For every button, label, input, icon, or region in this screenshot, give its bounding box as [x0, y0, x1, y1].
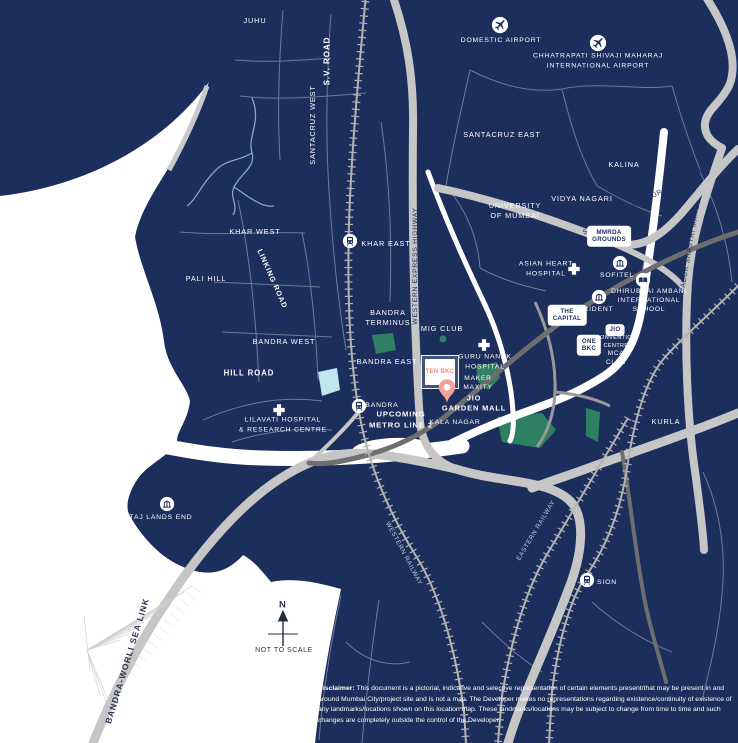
one-bkc-badge: ONE BKC	[577, 335, 601, 356]
domestic-airport-icon	[492, 17, 509, 34]
mmrda-grounds-badge: MMRDA GROUNDS	[587, 226, 631, 247]
area-label-maker-maxity: MAKER MAXITY	[463, 374, 492, 392]
landmark-label-domestic-airport: DOMESTIC AIRPORT	[461, 36, 542, 46]
area-label-kala-nagar: KALA NAGAR	[429, 418, 480, 428]
landmark-label-sofitel: SOFITEL	[600, 271, 634, 281]
area-label-bandra-east: BANDRA EAST	[357, 357, 418, 367]
area-label-bandra-terminus: BANDRA TERMINUS	[365, 308, 410, 328]
khar-east-station-icon	[343, 234, 358, 249]
lilavati-hospital-icon	[272, 403, 287, 418]
dhirubhai-ambani-school-icon	[636, 273, 651, 288]
landmark-label-guru-nanak-hospital: GURU NANAK HOSPITAL	[458, 352, 511, 371]
bandra-station-icon	[352, 399, 367, 414]
disclaimer-label: Disclaimer:	[318, 685, 355, 692]
compass-arrow-icon	[261, 609, 305, 649]
location-map: JUHU SANTACRUZ WEST S.V. ROAD SANTACRUZ …	[0, 0, 738, 743]
area-label-mig-club: MIG CLUB	[421, 324, 463, 334]
landmark-label-dhirubhai-ambani-school: DHIRUBHAI AMBANI INTERNATIONAL SCHOOL	[611, 287, 687, 315]
area-label-pali-hill: PALI HILL	[186, 274, 227, 284]
bandra-lake	[318, 368, 340, 396]
area-label-khar-east: KHAR EAST	[361, 239, 410, 249]
map-artwork	[0, 0, 738, 743]
landmark-label-international-airport: CHHATRAPATI SHIVAJI MAHARAJ INTERNATIONA…	[533, 51, 663, 70]
the-capital-badge: THE CAPITAL	[548, 305, 587, 326]
area-label-kurla: KURLA	[652, 417, 681, 427]
railway-label-upcoming-metro-line-2: UPCOMING METRO LINE 2	[369, 409, 433, 430]
guru-nanak-hospital-icon	[477, 338, 492, 353]
taj-lands-end-hotel-icon	[160, 497, 175, 512]
disclaimer-text: Disclaimer: This document is a pictorial…	[318, 684, 738, 726]
road-label-western-express-highway: WESTERN EXPRESS HIGHWAY	[411, 207, 421, 324]
jio-badge: JIO	[606, 324, 625, 336]
landmark-label-lilavati-hospital: LILAVATI HOSPITAL & RESEARCH CENTRE	[239, 415, 327, 434]
area-label-bandra-west: BANDRA WEST	[253, 337, 316, 347]
area-label-university-of-mumbai: UNIVERSITY OF MUMBAI	[489, 201, 542, 221]
area-label-vidya-nagari: VIDYA NAGARI	[551, 194, 612, 204]
area-label-kalina: KALINA	[608, 160, 639, 170]
station-label-bandra: BANDRA	[365, 401, 398, 411]
asian-heart-hospital-icon	[567, 262, 582, 277]
sion-station-icon	[580, 573, 595, 588]
road-label-santacruz-west: SANTACRUZ WEST	[308, 85, 318, 164]
area-label-santacruz-east: SANTACRUZ EAST	[463, 130, 540, 140]
juhu-stream	[187, 98, 274, 215]
landmark-label-taj-lands-end: TAJ LANDS END	[130, 513, 193, 523]
road-label-sv-road: S.V. ROAD	[321, 37, 332, 86]
area-label-juhu: JUHU	[244, 16, 267, 26]
area-label-mca-club: MCA CLUB	[606, 350, 626, 368]
location-pin-icon	[438, 379, 457, 404]
sofitel-hotel-icon	[613, 256, 628, 271]
station-label-sion: SION	[597, 578, 617, 588]
trident-hotel-icon	[592, 290, 607, 305]
landmark-label-asian-heart-hospital: ASIAN HEART HOSPITAL	[519, 259, 573, 278]
area-label-khar-west: KHAR WEST	[229, 227, 280, 237]
landmark-label-jio-convention-centre: CONVENTION CENTRE	[596, 335, 637, 351]
disclaimer-body: This document is a pictorial, indicative…	[318, 685, 732, 724]
international-airport-icon	[590, 35, 607, 52]
road-label-hill-road: HILL ROAD	[224, 369, 275, 380]
